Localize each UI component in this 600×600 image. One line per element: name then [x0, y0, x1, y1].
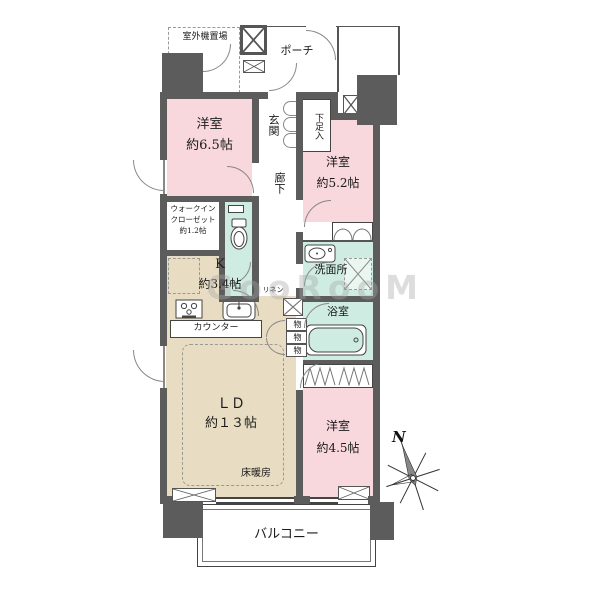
- bathtub-icon: [305, 324, 367, 356]
- wall-top-left-span: [162, 92, 268, 99]
- wall-bath-closet: [303, 360, 373, 364]
- compass-n-label: N: [391, 428, 407, 446]
- entrance-label: 玄関: [265, 101, 279, 149]
- balcony-label: バルコニー: [197, 528, 376, 543]
- shoe-cabinet-label: 下足入: [310, 103, 322, 149]
- pipe-shaft-box: [240, 25, 267, 55]
- outer-top-line: [336, 26, 400, 27]
- window-line-room65: [163, 158, 165, 198]
- room65-label: 洋室: [167, 118, 252, 133]
- room45-label: 洋室: [303, 420, 373, 434]
- room52-label: 洋室: [303, 156, 373, 170]
- bathroom-label: 浴室: [307, 306, 369, 319]
- meter-box: [243, 60, 265, 73]
- room65-size: 約6.5帖: [167, 139, 252, 154]
- vanity-sink-icon: [304, 244, 336, 263]
- window-line-ld: [163, 346, 165, 390]
- wall-bottom-seg-3: [368, 496, 380, 504]
- room45-window: [310, 497, 338, 504]
- wic-label-2: クローゼット: [166, 216, 220, 225]
- wall-wic-bottom: [160, 250, 225, 256]
- room45-shutter-box: [338, 486, 370, 500]
- toilet-icon: [229, 218, 249, 252]
- wall-block-topleft: [162, 53, 203, 95]
- room45-size: 約4.5帖: [303, 442, 373, 456]
- storage-box-2: 物: [286, 331, 307, 344]
- floor-heating-dashed-zone: [182, 344, 284, 486]
- storage-box-3: 物: [286, 344, 307, 357]
- counter-label: カウンター: [170, 323, 262, 333]
- wall-bottom-seg-1: [160, 496, 172, 504]
- wall-left-1: [160, 92, 167, 160]
- outdoor-unit-label: 室外機置場: [170, 32, 240, 42]
- floor-plan: 物 物 物: [0, 0, 600, 600]
- porch-top-line: [262, 26, 306, 27]
- porch-right-line: [337, 27, 339, 92]
- window-arc-room65: [133, 160, 164, 191]
- wall-52-bottom-line: [303, 240, 373, 242]
- ld-window: [216, 497, 294, 504]
- storage-label-3: 物: [287, 346, 308, 355]
- corridor-label: 廊下: [271, 156, 285, 210]
- bifold-door-icon-52: [333, 225, 372, 241]
- wall-a-1: [296, 99, 303, 200]
- ld-size: 約１３帖: [166, 417, 296, 432]
- wall-a-4: [296, 390, 303, 498]
- floor-heating-label: 床暖房: [226, 468, 286, 480]
- wic-label-1: ウォークイン: [166, 205, 220, 214]
- storage-label-2: 物: [287, 333, 308, 342]
- window-arc-ld: [133, 350, 165, 382]
- wall-room65-bottom: [160, 196, 259, 202]
- wall-bottom-seg-2: [294, 496, 310, 504]
- watermark-text: GooRooM: [190, 268, 440, 307]
- wall-a-2: [296, 232, 303, 264]
- porch-label: ポーチ: [270, 45, 324, 58]
- compass-icon: N: [380, 426, 446, 510]
- outer-right-line: [398, 27, 400, 75]
- ld-label: ＬＤ: [166, 396, 296, 412]
- wic-label-3: 約1.2帖: [166, 227, 220, 236]
- ld-shutter-box: [172, 488, 216, 502]
- toilet-shelf: [228, 205, 244, 213]
- room52-size: 約5.2帖: [303, 177, 373, 191]
- wall-right: [373, 113, 380, 504]
- wall-corridor-left-1: [252, 99, 259, 163]
